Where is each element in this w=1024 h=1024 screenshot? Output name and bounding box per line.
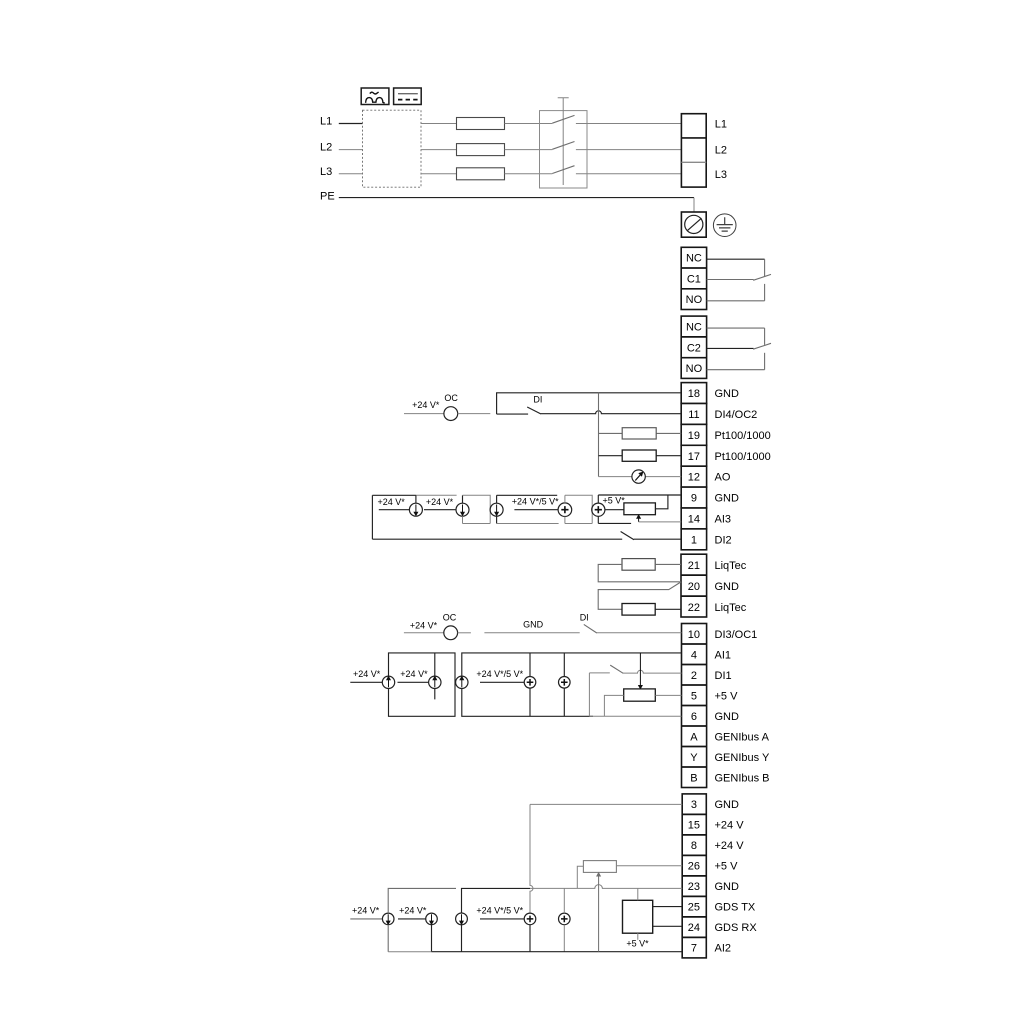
svg-text:+24 V*/5 V*: +24 V*/5 V* xyxy=(476,669,523,679)
svg-text:NO: NO xyxy=(686,363,703,375)
svg-text:C1: C1 xyxy=(687,273,701,285)
svg-text:9: 9 xyxy=(691,493,697,505)
svg-text:DI4/OC2: DI4/OC2 xyxy=(715,409,758,421)
svg-text:+24 V*: +24 V* xyxy=(353,669,381,679)
svg-text:18: 18 xyxy=(688,388,700,400)
svg-text:21: 21 xyxy=(688,560,700,572)
svg-text:L2: L2 xyxy=(320,142,332,154)
svg-text:+24 V*/5 V*: +24 V*/5 V* xyxy=(512,497,559,507)
svg-text:+24 V*: +24 V* xyxy=(352,905,380,915)
svg-text:AO: AO xyxy=(715,472,731,484)
svg-text:+5 V*: +5 V* xyxy=(626,938,649,948)
svg-text:GENIbus A: GENIbus A xyxy=(715,731,770,743)
svg-text:+5 V: +5 V xyxy=(715,690,739,702)
svg-text:DI: DI xyxy=(580,612,589,622)
svg-text:+24 V*: +24 V* xyxy=(426,497,454,507)
svg-text:24: 24 xyxy=(688,922,700,934)
svg-text:+5 V: +5 V xyxy=(715,861,739,873)
svg-text:DI3/OC1: DI3/OC1 xyxy=(715,629,758,641)
svg-text:DI1: DI1 xyxy=(715,670,732,682)
svg-text:B: B xyxy=(690,772,697,784)
svg-text:GND: GND xyxy=(715,581,740,593)
svg-text:10: 10 xyxy=(688,629,700,641)
svg-text:3: 3 xyxy=(691,799,697,811)
svg-text:GND: GND xyxy=(715,881,740,893)
svg-text:8: 8 xyxy=(691,840,697,852)
svg-text:GND: GND xyxy=(715,388,740,400)
svg-text:14: 14 xyxy=(688,514,700,526)
svg-text:A: A xyxy=(690,731,698,743)
svg-text:L1: L1 xyxy=(320,116,332,128)
svg-text:23: 23 xyxy=(688,881,700,893)
svg-text:22: 22 xyxy=(688,602,700,614)
svg-text:11: 11 xyxy=(688,409,699,421)
svg-text:25: 25 xyxy=(688,902,700,914)
svg-text:GDS RX: GDS RX xyxy=(715,922,758,934)
svg-text:DI2: DI2 xyxy=(715,534,732,546)
svg-text:OC: OC xyxy=(443,613,457,623)
svg-text:+24 V: +24 V xyxy=(715,840,745,852)
svg-text:L1: L1 xyxy=(715,119,727,131)
svg-text:PE: PE xyxy=(320,191,335,203)
svg-text:Pt100/1000: Pt100/1000 xyxy=(715,451,771,463)
svg-text:L3: L3 xyxy=(715,169,727,181)
svg-text:Pt100/1000: Pt100/1000 xyxy=(715,430,771,442)
svg-text:NC: NC xyxy=(686,253,702,265)
svg-text:C2: C2 xyxy=(687,342,701,354)
svg-text:DI: DI xyxy=(533,395,542,405)
svg-text:GND: GND xyxy=(715,799,740,811)
svg-text:LiqTec: LiqTec xyxy=(715,560,747,572)
svg-text:GENIbus Y: GENIbus Y xyxy=(715,752,770,764)
svg-text:+24 V*: +24 V* xyxy=(400,669,428,679)
svg-text:+24 V*/5 V*: +24 V*/5 V* xyxy=(476,905,523,915)
svg-text:12: 12 xyxy=(688,472,700,484)
svg-text:NC: NC xyxy=(686,322,702,334)
svg-text:+24 V*: +24 V* xyxy=(412,400,440,410)
svg-text:5: 5 xyxy=(691,690,697,702)
svg-text:+24 V*: +24 V* xyxy=(410,621,438,631)
svg-text:L3: L3 xyxy=(320,166,332,178)
svg-text:L2: L2 xyxy=(715,145,727,157)
svg-text:GDS TX: GDS TX xyxy=(715,902,756,914)
svg-text:GND: GND xyxy=(715,711,740,723)
svg-text:+24 V*: +24 V* xyxy=(378,497,406,507)
svg-text:GENIbus B: GENIbus B xyxy=(715,772,770,784)
svg-text:1: 1 xyxy=(691,534,697,546)
svg-text:AI2: AI2 xyxy=(715,943,732,955)
svg-text:GND: GND xyxy=(715,493,740,505)
svg-text:+24 V: +24 V xyxy=(715,820,745,832)
svg-text:4: 4 xyxy=(691,649,697,661)
svg-text:+24 V*: +24 V* xyxy=(399,905,427,915)
svg-text:2: 2 xyxy=(691,670,697,682)
svg-text:6: 6 xyxy=(691,711,697,723)
svg-text:15: 15 xyxy=(688,820,700,832)
svg-text:AI3: AI3 xyxy=(715,514,732,526)
svg-text:+5 V*: +5 V* xyxy=(603,496,626,506)
svg-text:19: 19 xyxy=(688,430,700,442)
svg-text:NO: NO xyxy=(686,294,703,306)
svg-text:OC: OC xyxy=(444,393,458,403)
svg-text:26: 26 xyxy=(688,861,700,873)
svg-text:LiqTec: LiqTec xyxy=(715,602,747,614)
svg-text:Y: Y xyxy=(690,752,698,764)
svg-text:GND: GND xyxy=(523,620,544,630)
svg-text:7: 7 xyxy=(691,943,697,955)
svg-text:17: 17 xyxy=(688,451,700,463)
svg-text:20: 20 xyxy=(688,581,700,593)
svg-text:AI1: AI1 xyxy=(715,649,732,661)
